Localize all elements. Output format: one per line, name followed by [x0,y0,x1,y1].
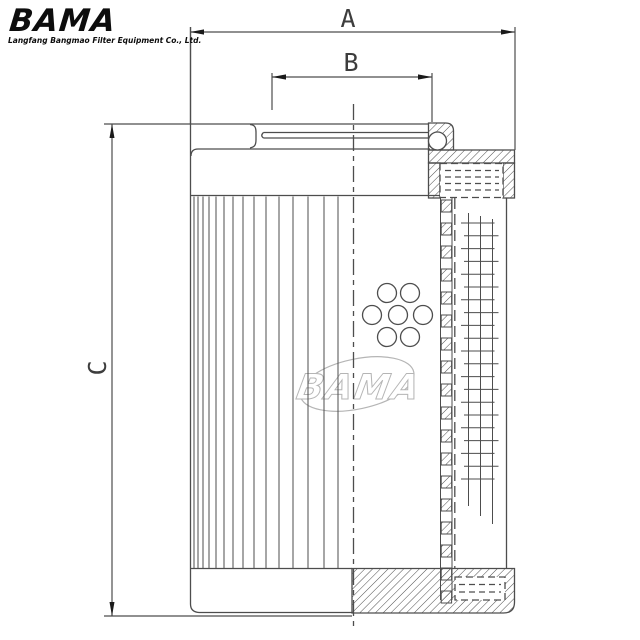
watermark-text: BAMA [294,367,425,408]
dim-a-arrow-right-icon [501,29,515,34]
brand-logo: BAMA Langfang Bangmao Filter Equipment C… [8,6,201,45]
dim-a-label: A [340,4,355,33]
top-cap-step [250,125,256,149]
flange-inner-wall [429,163,441,198]
drawing-page: BAMA Langfang Bangmao Filter Equipment C… [0,0,640,640]
filter-element-technical-drawing: BAMA A B C [0,0,640,640]
outer-shell-left-edge [191,27,353,613]
thread-region-bottom [455,577,505,600]
top-cap-surface-edge [191,149,430,156]
dim-c-label: C [83,360,112,375]
support-mesh [461,213,499,524]
dim-c-arrow-bottom-icon [110,602,115,616]
dimension-b-group [272,73,432,122]
thread-region-top [440,164,503,198]
bypass-holes-group [363,284,433,347]
filter-part-group [104,27,515,631]
top-flange-section [429,150,515,163]
dim-b-arrow-left-icon [272,74,286,79]
flange-outer-wall [503,163,515,198]
o-ring-seal [429,132,447,150]
dim-b-arrow-right-icon [418,74,432,79]
dim-c-arrow-top-icon [110,124,115,138]
bail-handle [262,133,428,139]
perforated-core-tube [441,198,453,603]
brand-logo-text: BAMA [8,6,204,36]
dimension-a-group [190,27,515,150]
watermark: BAMA [294,347,425,420]
dim-b-label: B [343,48,358,77]
